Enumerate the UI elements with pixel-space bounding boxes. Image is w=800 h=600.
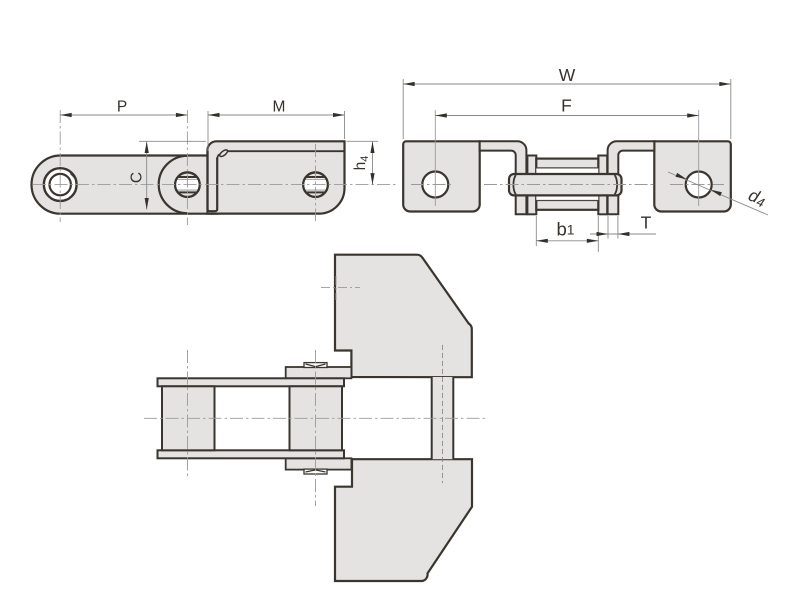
svg-text:M: M xyxy=(273,99,286,116)
svg-text:W: W xyxy=(559,65,576,85)
svg-text:C: C xyxy=(129,172,146,183)
svg-text:h4: h4 xyxy=(352,156,371,171)
svg-text:T: T xyxy=(641,213,652,233)
svg-text:F: F xyxy=(561,96,572,116)
svg-text:P: P xyxy=(117,99,127,116)
svg-text:b1: b1 xyxy=(556,219,574,240)
